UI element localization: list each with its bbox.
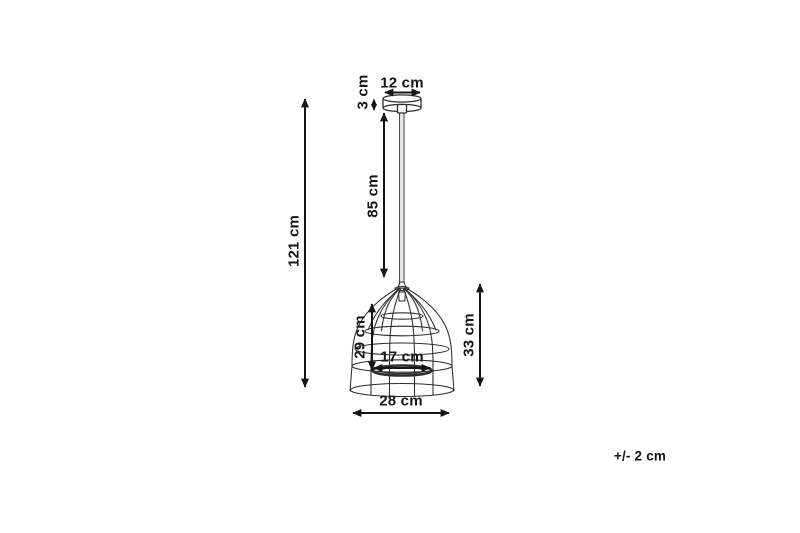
dim-label-cord-length: 85 cm [365, 174, 382, 218]
cord-line [400, 112, 404, 284]
dim-label-canopy-width: 12 cm [380, 75, 424, 92]
power-cord [398, 105, 407, 285]
cord-nut [398, 105, 407, 114]
cage-fan-wire [368, 286, 402, 330]
product-dimension-diagram: 121 cm 85 cm 12 cm 3 cm 29 cm 33 cm 17 c… [0, 0, 800, 533]
cage-ring [381, 313, 423, 319]
tolerance-note: +/- 2 cm [614, 449, 666, 464]
dim-label-canopy-height: 3 cm [355, 75, 372, 110]
dim-label-shade-inner-height: 29 cm [352, 315, 369, 359]
dim-label-inner-diameter: 17 cm [380, 349, 424, 366]
cage-ring [365, 326, 439, 336]
cage-fan-wire [402, 286, 436, 330]
bulb-socket [399, 292, 406, 301]
dim-label-total-height: 121 cm [286, 215, 303, 267]
dim-label-shade-height: 33 cm [461, 313, 478, 357]
dim-label-shade-diameter: 28 cm [379, 393, 423, 410]
canopy-top-ring [383, 95, 421, 102]
